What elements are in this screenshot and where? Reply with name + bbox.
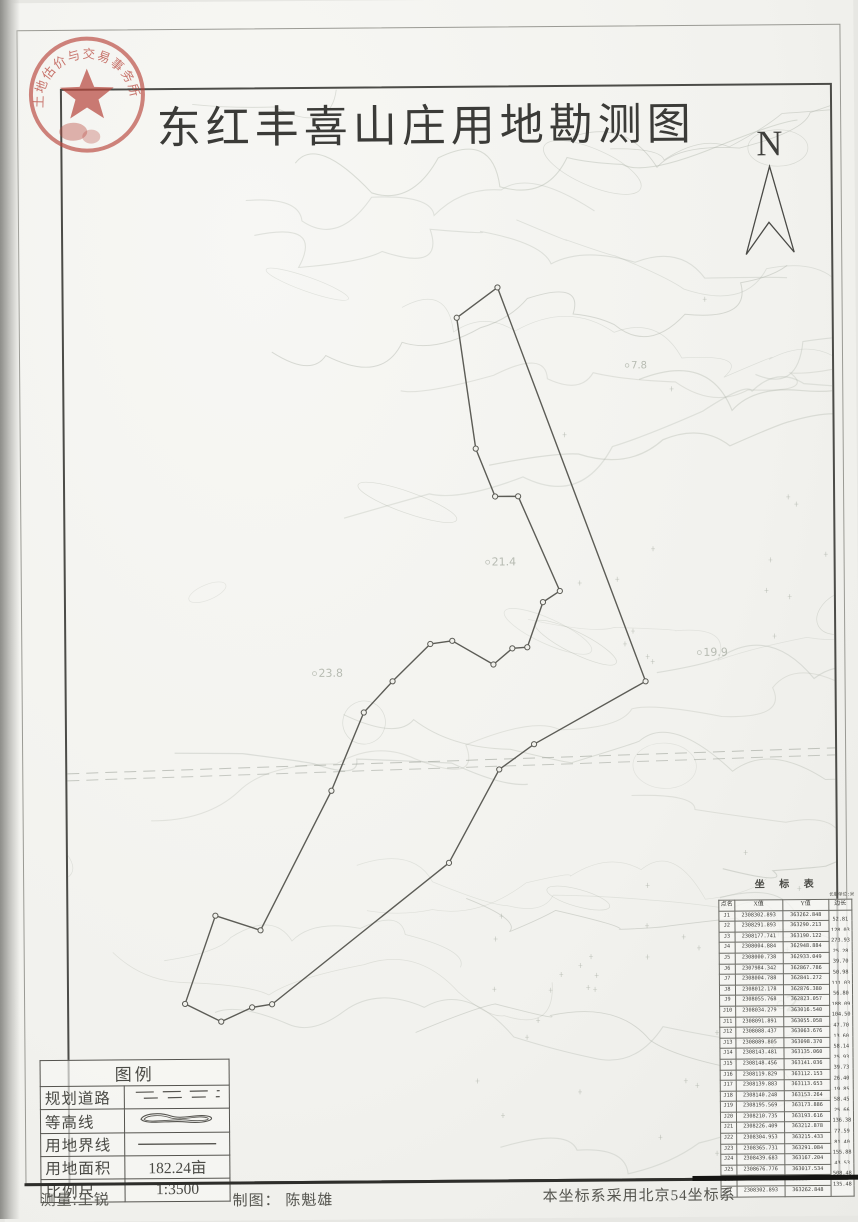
point-y: 363063.676 xyxy=(784,1026,830,1037)
point-y: 363190.122 xyxy=(783,931,829,942)
point-name: J11 xyxy=(720,1017,736,1028)
point-x: 2308139.883 xyxy=(736,1080,784,1091)
land-boundary-symbol xyxy=(125,1132,230,1156)
point-x: 2307984.342 xyxy=(735,963,783,974)
spot-elevation-label: 7.8 xyxy=(631,360,647,371)
point-x: 2308302.893 xyxy=(735,910,783,921)
point-name: J1 xyxy=(719,911,735,922)
point-y: 363290.213 xyxy=(783,921,829,932)
boundary-vertex-marker xyxy=(497,767,502,772)
point-name: J2 xyxy=(719,921,735,932)
point-x: 2308195.569 xyxy=(736,1101,784,1112)
coordinate-row: J1 2308302.893 363262.848 xyxy=(721,1185,854,1197)
spot-elevation-label: 21.4 xyxy=(492,555,517,568)
coordinate-table: 坐 标 表 长度单位:米 点名 X值 Y值 边长 J1 2308302.893 … xyxy=(718,875,858,1198)
point-y: 363113.653 xyxy=(784,1079,830,1090)
boundary-vertex-marker xyxy=(557,588,562,593)
edge-length: 508.48 xyxy=(831,1164,854,1175)
edge-length: 25.93 xyxy=(830,1047,853,1058)
point-x: 2308177.741 xyxy=(735,932,783,943)
spot-elevation-marker xyxy=(486,560,490,564)
point-name: J23 xyxy=(721,1144,737,1155)
boundary-vertex-marker xyxy=(258,928,263,933)
point-name: J18 xyxy=(720,1091,736,1102)
point-name: J25 xyxy=(721,1165,737,1176)
point-x: 2308304.953 xyxy=(736,1133,784,1144)
point-name: J21 xyxy=(721,1123,737,1134)
point-x: 2308000.738 xyxy=(735,953,783,964)
point-y: 363017.534 xyxy=(785,1164,831,1175)
point-y: 363112.153 xyxy=(784,1069,830,1080)
col-edge-length: 边长 xyxy=(829,899,852,910)
point-y: 363193.616 xyxy=(784,1111,830,1122)
land-area-value: 182.24亩 xyxy=(125,1155,230,1179)
edge-length: 58.14 xyxy=(830,1037,853,1048)
boundary-vertex-marker xyxy=(643,679,648,684)
point-x: 2308291.893 xyxy=(735,921,783,932)
legend-label: 用地界线 xyxy=(41,1133,125,1157)
boundary-vertex-marker xyxy=(249,1005,254,1010)
boundary-vertex-marker xyxy=(510,646,515,651)
col-x-value: X值 xyxy=(735,900,783,911)
legend-title: 图例 xyxy=(40,1059,229,1086)
point-y: 362876.380 xyxy=(783,984,829,995)
cartographer-credit: 制图： 陈魁雄 xyxy=(233,1189,334,1211)
point-x: 2308088.437 xyxy=(736,1027,784,1038)
boundary-vertex-marker xyxy=(491,662,496,667)
boundary-vertex-marker xyxy=(531,742,536,747)
point-x: 2308140.248 xyxy=(736,1090,784,1101)
point-x: 2308012.178 xyxy=(735,984,783,995)
edge-length: 52.81 xyxy=(829,910,852,921)
planned-road-symbol xyxy=(124,1085,229,1109)
point-x: 2308004.788 xyxy=(735,974,783,985)
edge-length: 25.28 xyxy=(829,942,852,953)
edge-length: 39.70 xyxy=(829,952,852,963)
edge-length: 77.59 xyxy=(830,1122,853,1133)
coordinate-system-note: 本坐标系采用北京54坐标系 xyxy=(543,1184,736,1207)
boundary-vertex-marker xyxy=(428,641,433,646)
point-name: J8 xyxy=(719,985,735,996)
point-name: J15 xyxy=(720,1059,736,1070)
spot-elevation-marker xyxy=(697,651,701,655)
point-y: 363212.878 xyxy=(784,1122,830,1133)
boundary-vertex-marker xyxy=(525,645,530,650)
edge-length: 50.98 xyxy=(829,963,852,974)
boundary-vertex-marker xyxy=(454,315,459,320)
point-y: 363055.058 xyxy=(784,1016,830,1027)
boundary-vertex-marker xyxy=(329,788,334,793)
edge-length: 13.60 xyxy=(830,1026,853,1037)
point-x: 2308034.279 xyxy=(735,1006,783,1017)
point-x: 2308143.481 xyxy=(736,1048,784,1059)
edge-length: 155.88 xyxy=(830,1143,853,1154)
point-y: 363141.036 xyxy=(784,1058,830,1069)
point-x: 2308119.829 xyxy=(736,1069,784,1080)
point-x: 2308226.409 xyxy=(736,1122,784,1133)
spot-elevation-label: 23.8 xyxy=(318,667,343,680)
point-name: J12 xyxy=(720,1027,736,1038)
edge-length: 58.45 xyxy=(830,1090,853,1101)
boundary-vertex-marker xyxy=(540,599,545,604)
point-name: J19 xyxy=(720,1101,736,1112)
point-y: 363262.848 xyxy=(783,910,829,921)
point-name: J6 xyxy=(719,964,735,975)
boundary-vertex-marker xyxy=(515,494,520,499)
point-name: J22 xyxy=(721,1133,737,1144)
boundary-vertex-marker xyxy=(213,913,218,918)
legend-row-contour: 等高线 xyxy=(40,1108,229,1133)
point-y: 363215.433 xyxy=(784,1132,830,1143)
point-name: J20 xyxy=(720,1112,736,1123)
point-name: J14 xyxy=(720,1048,736,1059)
official-stamp: 土地估价与交易事务所 xyxy=(20,28,153,161)
boundary-vertex-marker xyxy=(446,860,451,865)
stamp-bottom-smudge xyxy=(82,130,100,144)
boundary-vertex-marker xyxy=(219,1019,224,1024)
coordinate-table-title: 坐 标 表 xyxy=(718,875,856,891)
point-y: 363016.540 xyxy=(783,1005,829,1016)
point-y: 362948.884 xyxy=(783,942,829,953)
edge-length: 43.53 xyxy=(831,1153,854,1164)
legend-row-area: 用地面积 182.24亩 xyxy=(41,1155,230,1179)
point-name: J13 xyxy=(720,1038,736,1049)
point-name: J3 xyxy=(719,932,735,943)
edge-length: 136.38 xyxy=(830,1111,853,1122)
point-name: J17 xyxy=(720,1080,736,1091)
spot-elevation-marker xyxy=(313,672,317,676)
point-x: 2308148.456 xyxy=(736,1059,784,1070)
point-name: J10 xyxy=(720,1006,736,1017)
edge-length: 19.85 xyxy=(830,1079,853,1090)
point-y: 362841.272 xyxy=(783,974,829,985)
edge-length: 26.40 xyxy=(830,1069,853,1080)
edge-length: 47.70 xyxy=(829,1016,852,1027)
legend-row-road: 规划道路 xyxy=(40,1085,229,1109)
point-y: 363173.886 xyxy=(784,1101,830,1112)
point-name: J5 xyxy=(719,953,735,964)
point-x: 2308055.768 xyxy=(735,995,783,1006)
north-label: N xyxy=(731,122,807,165)
point-y: 362823.057 xyxy=(783,995,829,1006)
point-name: J7 xyxy=(719,974,735,985)
stamp-star-icon xyxy=(60,68,114,118)
edge-length: 128.03 xyxy=(829,920,852,931)
edge-length: 273.93 xyxy=(829,931,852,942)
scanned-page: 21.423.819.97.82 东红丰喜山庄用地勘测图 N 土地估价与交易事务… xyxy=(0,0,858,1222)
point-y: 362867.786 xyxy=(783,963,829,974)
boundary-vertex-marker xyxy=(269,1002,274,1007)
point-name: J16 xyxy=(720,1070,736,1081)
point-x: 2308439.683 xyxy=(737,1154,785,1165)
legend-label: 规划道路 xyxy=(40,1086,124,1110)
point-x: 2308302.893 xyxy=(737,1186,785,1197)
edge-length: 25.66 xyxy=(830,1100,853,1111)
edge-length xyxy=(831,1185,854,1196)
spot-elevation-marker xyxy=(625,364,629,368)
unit-note: 长度单位:米 xyxy=(732,891,854,898)
point-y: 363153.264 xyxy=(784,1090,830,1101)
point-x: 2308004.884 xyxy=(735,942,783,953)
north-indicator: N xyxy=(731,122,812,273)
edge-length: 81.40 xyxy=(830,1132,853,1143)
point-y: 362933.049 xyxy=(783,952,829,963)
boundary-vertex-marker xyxy=(473,446,478,451)
contour-line-symbol xyxy=(124,1108,229,1133)
point-x: 2308365.731 xyxy=(736,1143,784,1154)
edge-length: 39.73 xyxy=(830,1058,853,1069)
edge-length: 111.03 xyxy=(829,973,852,984)
edge-length: 104.50 xyxy=(829,1005,852,1016)
boundary-vertex-marker xyxy=(450,638,455,643)
boundary-vertex-marker xyxy=(495,285,500,290)
point-x: 2308089.805 xyxy=(736,1037,784,1048)
point-y: 363135.060 xyxy=(784,1048,830,1059)
point-y: 363291.084 xyxy=(785,1143,831,1154)
legend-label: 用地面积 xyxy=(41,1156,125,1180)
point-y: 363098.370 xyxy=(784,1037,830,1048)
point-name: J9 xyxy=(720,995,736,1006)
col-point-name: 点名 xyxy=(719,900,735,911)
point-x: 2308091.891 xyxy=(735,1016,783,1027)
boundary-vertex-marker xyxy=(492,494,497,499)
boundary-vertex-marker xyxy=(390,679,395,684)
edge-length: 56.80 xyxy=(829,984,852,995)
point-name: J4 xyxy=(719,942,735,953)
spot-elevation-label: 19.9 xyxy=(703,646,728,659)
point-name: J24 xyxy=(721,1154,737,1165)
point-x: 2308676.776 xyxy=(737,1165,785,1176)
surveyor-credit: 测量:王锐 xyxy=(41,1189,110,1211)
point-y: 363167.204 xyxy=(785,1154,831,1165)
col-y-value: Y值 xyxy=(783,899,829,910)
legend-row-boundary: 用地界线 xyxy=(41,1132,230,1156)
edge-length: 188.09 xyxy=(829,995,852,1006)
point-x: 2308210.735 xyxy=(736,1112,784,1123)
legend-label: 等高线 xyxy=(40,1109,124,1134)
boundary-vertex-marker xyxy=(182,1001,187,1006)
page-title: 东红丰喜山庄用地勘测图 xyxy=(146,88,706,156)
point-y: 363262.848 xyxy=(785,1185,831,1196)
boundary-vertex-marker xyxy=(361,710,366,715)
north-arrow-icon xyxy=(732,164,813,275)
